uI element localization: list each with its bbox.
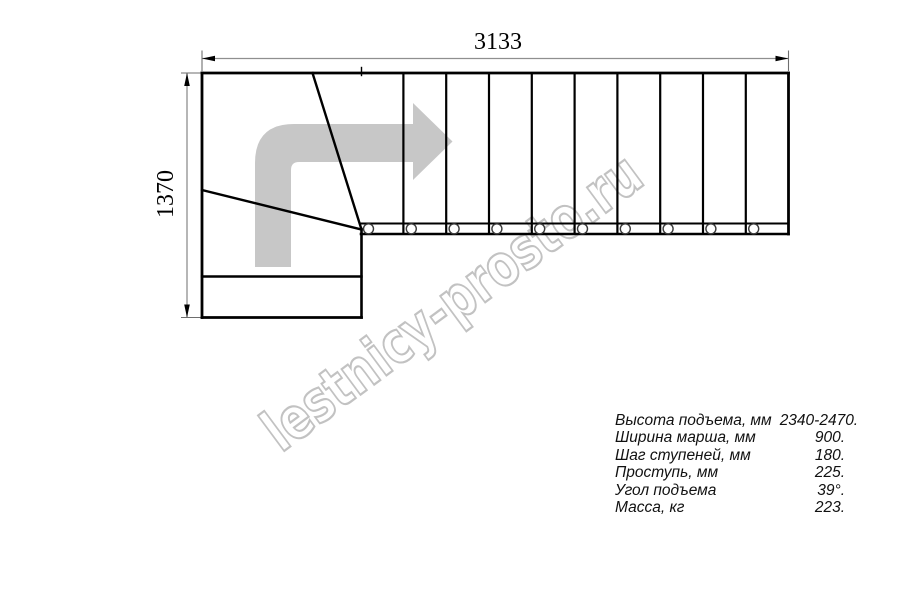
spec-value: 2340-2470. <box>780 412 858 429</box>
spec-row: Проступь, мм 225. <box>615 464 845 481</box>
spec-row: Угол подъема 39°. <box>615 482 845 499</box>
spec-label: Высота подъема, мм <box>615 412 772 429</box>
step-edges <box>403 73 745 234</box>
spec-row: Шаг ступеней, мм 180. <box>615 447 845 464</box>
baluster-circles <box>364 224 759 234</box>
spec-value: 900. <box>815 429 845 446</box>
spec-label: Проступь, мм <box>615 464 718 481</box>
spec-label: Угол подъема <box>615 482 716 499</box>
spec-value: 39°. <box>817 482 845 499</box>
staircase-plan-page: lestnicy-prosto.ru <box>0 0 900 600</box>
specs-table: Высота подъема, мм 2340-2470. Ширина мар… <box>615 412 845 516</box>
spec-label: Ширина марша, мм <box>615 429 756 446</box>
spec-label: Масса, кг <box>615 499 684 516</box>
spec-row: Высота подъема, мм 2340-2470. <box>615 412 845 429</box>
direction-arrow-icon <box>255 103 453 267</box>
top-dimension-label: 3133 <box>448 30 548 54</box>
spec-value: 223. <box>815 499 845 516</box>
spec-row: Масса, кг 223. <box>615 499 845 516</box>
spec-label: Шаг ступеней, мм <box>615 447 751 464</box>
left-dimension-label: 1370 <box>154 144 180 244</box>
spec-row: Ширина марша, мм 900. <box>615 429 845 446</box>
spec-value: 225. <box>815 464 845 481</box>
spec-value: 180. <box>815 447 845 464</box>
